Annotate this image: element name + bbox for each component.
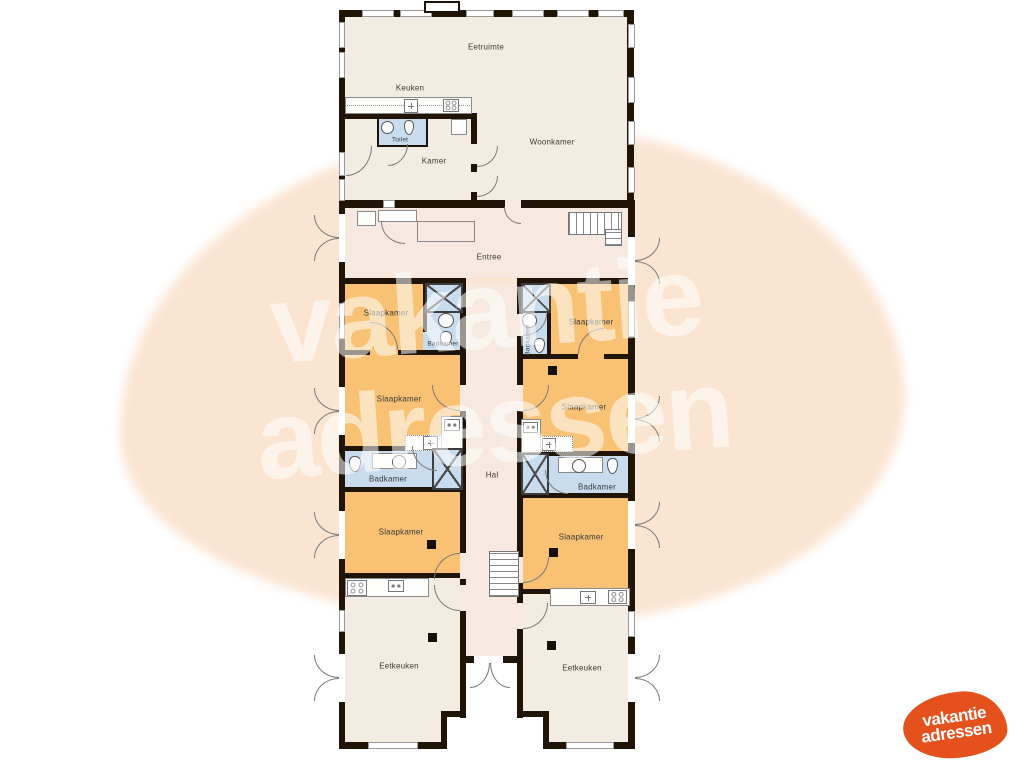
door-arc	[635, 261, 660, 284]
sink-icon	[381, 121, 394, 134]
room-label-badkamer: Badkamer	[578, 483, 616, 492]
wall	[460, 278, 466, 718]
stairs-icon	[605, 229, 622, 246]
window	[339, 610, 345, 632]
window	[628, 167, 635, 193]
door-arc	[635, 419, 660, 442]
room-label-eetruimte: Eetruimte	[468, 43, 504, 52]
door-opening	[339, 214, 345, 262]
room-label-eetkeuken: Eetkeuken	[379, 662, 419, 671]
cooktop-icon	[404, 99, 418, 113]
room-hal	[466, 283, 517, 656]
closet	[378, 210, 417, 222]
door-arc	[635, 655, 660, 678]
wall	[543, 711, 549, 749]
door-arc	[635, 678, 660, 701]
shower-icon	[521, 283, 551, 313]
building-notch	[447, 717, 463, 742]
stove-icon	[608, 590, 627, 604]
door-arc	[314, 678, 339, 701]
door-opening	[339, 511, 345, 559]
window	[339, 179, 345, 201]
door-opening	[370, 350, 398, 355]
column	[428, 633, 437, 642]
room-label-entree: Entree	[477, 253, 502, 262]
floor-plan: Eetruimte Keuken Toilet Kamer Woonkamer …	[0, 0, 1024, 768]
column	[427, 540, 436, 549]
window	[368, 742, 418, 749]
door-arc	[314, 512, 339, 535]
sink-icon	[523, 422, 538, 433]
room-label-slaapkamer: Slaapkamer	[569, 318, 614, 327]
cooktop-icon	[542, 438, 556, 451]
window	[628, 301, 635, 337]
room-label-slaapkamer: Slaapkamer	[379, 528, 424, 537]
wall	[339, 350, 370, 355]
window	[557, 10, 589, 17]
window	[566, 742, 614, 749]
room-label-woonkamer: Woonkamer	[530, 138, 575, 147]
room-label-slaapkamer: Slaapkamer	[364, 309, 409, 318]
door-arc	[635, 525, 660, 548]
door-opening	[628, 654, 635, 702]
door-arc	[635, 396, 660, 419]
wall	[441, 711, 447, 749]
room-label-hal: Hal	[486, 471, 499, 480]
door-arc	[635, 238, 660, 261]
door-arc	[314, 411, 339, 434]
door-opening	[460, 553, 466, 579]
door-arc	[314, 215, 339, 238]
door-opening	[460, 585, 466, 611]
wall	[339, 446, 412, 451]
room-label-badkamer: Badkamer	[525, 324, 532, 355]
door-arc	[314, 535, 339, 558]
logo-text: vakantie adressen	[918, 705, 992, 746]
door-arc	[490, 663, 510, 688]
window	[339, 303, 345, 339]
room-label-slaapkamer: Slaapkamer	[559, 533, 604, 542]
column	[548, 366, 557, 375]
room-label-badkamer: Badkamer	[369, 475, 407, 484]
room-label-slaapkamer: Slaapkamer	[562, 403, 607, 412]
wall	[604, 354, 635, 359]
stove-icon	[347, 580, 367, 596]
sink-icon	[444, 419, 460, 431]
room-label-kamer: Kamer	[422, 157, 447, 166]
window	[362, 10, 394, 17]
floorplan-canvas: Eetruimte Keuken Toilet Kamer Woonkamer …	[0, 0, 1024, 768]
wall	[517, 278, 523, 718]
stove-icon	[443, 99, 459, 112]
closet	[357, 211, 376, 226]
sink-icon	[388, 580, 404, 592]
window	[598, 10, 624, 17]
sink-icon	[392, 455, 406, 469]
column	[547, 641, 556, 650]
wall	[460, 656, 474, 663]
room-label-eetkeuken: Eetkeuken	[562, 664, 602, 673]
column	[549, 548, 558, 557]
window	[628, 24, 635, 48]
door-opening	[578, 354, 604, 359]
door-opening	[474, 656, 503, 663]
window	[339, 22, 345, 48]
sink-icon	[572, 459, 586, 473]
door-opening	[628, 237, 635, 285]
room-label-slaapkamer: Slaapkamer	[377, 395, 422, 404]
window	[339, 52, 345, 78]
door-arc	[635, 502, 660, 525]
room-label-keuken: Keuken	[396, 84, 424, 93]
chimney	[424, 1, 460, 13]
door-opening	[628, 395, 635, 443]
door-opening	[339, 387, 345, 435]
room-label-toilet: Toilet	[392, 137, 408, 144]
window	[512, 10, 544, 17]
window	[628, 121, 635, 145]
building-notch	[523, 717, 543, 742]
door-arc	[314, 655, 339, 678]
door-opening	[339, 654, 345, 702]
wall	[503, 656, 523, 663]
wall	[398, 350, 466, 355]
stairs-icon	[489, 551, 519, 597]
window	[383, 200, 395, 208]
door-arc	[314, 388, 339, 411]
window	[628, 77, 635, 103]
door-opening	[628, 501, 635, 549]
door-arc	[314, 238, 339, 261]
sink-icon	[580, 591, 596, 604]
door-opening	[460, 385, 466, 411]
partition	[417, 221, 475, 242]
window	[339, 152, 345, 176]
window	[628, 611, 635, 637]
door-arc	[470, 663, 490, 688]
window	[466, 10, 494, 17]
room-label-badkamer: Badkamer	[427, 341, 458, 348]
shower-icon	[425, 283, 463, 313]
sink-icon	[438, 313, 454, 328]
cabinet	[451, 119, 467, 135]
